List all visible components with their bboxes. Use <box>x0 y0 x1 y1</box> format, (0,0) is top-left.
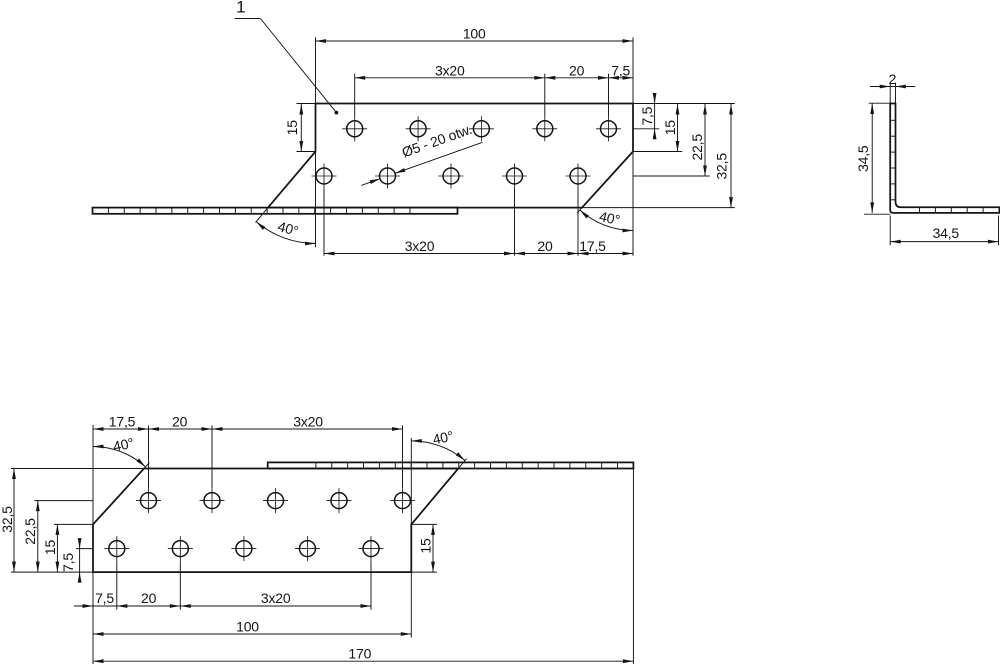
svg-text:3x20: 3x20 <box>405 238 435 254</box>
svg-text:7,5: 7,5 <box>639 106 655 125</box>
svg-text:3x20: 3x20 <box>293 414 323 430</box>
svg-text:20: 20 <box>141 590 157 606</box>
svg-text:34,5: 34,5 <box>933 225 960 241</box>
svg-text:15: 15 <box>662 120 678 136</box>
svg-text:2: 2 <box>889 71 897 87</box>
svg-text:7,5: 7,5 <box>95 590 114 606</box>
svg-text:100: 100 <box>463 26 486 42</box>
svg-text:7,5: 7,5 <box>611 63 630 79</box>
svg-text:3x20: 3x20 <box>435 63 465 79</box>
svg-text:15: 15 <box>418 538 434 554</box>
svg-text:20: 20 <box>537 238 553 254</box>
svg-text:100: 100 <box>236 618 259 634</box>
svg-text:1: 1 <box>236 0 245 17</box>
svg-text:34,5: 34,5 <box>855 145 871 172</box>
svg-text:15: 15 <box>284 120 300 136</box>
svg-text:3x20: 3x20 <box>261 590 291 606</box>
svg-text:22,5: 22,5 <box>689 134 705 161</box>
svg-text:15: 15 <box>42 540 58 556</box>
svg-text:170: 170 <box>348 646 371 662</box>
svg-text:17,5: 17,5 <box>579 238 606 254</box>
svg-text:7,5: 7,5 <box>60 553 76 572</box>
svg-text:20: 20 <box>172 414 188 430</box>
svg-text:20: 20 <box>569 63 585 79</box>
svg-text:32,5: 32,5 <box>0 506 15 533</box>
svg-text:17,5: 17,5 <box>109 414 136 430</box>
svg-text:22,5: 22,5 <box>22 518 38 545</box>
svg-text:32,5: 32,5 <box>714 153 730 180</box>
